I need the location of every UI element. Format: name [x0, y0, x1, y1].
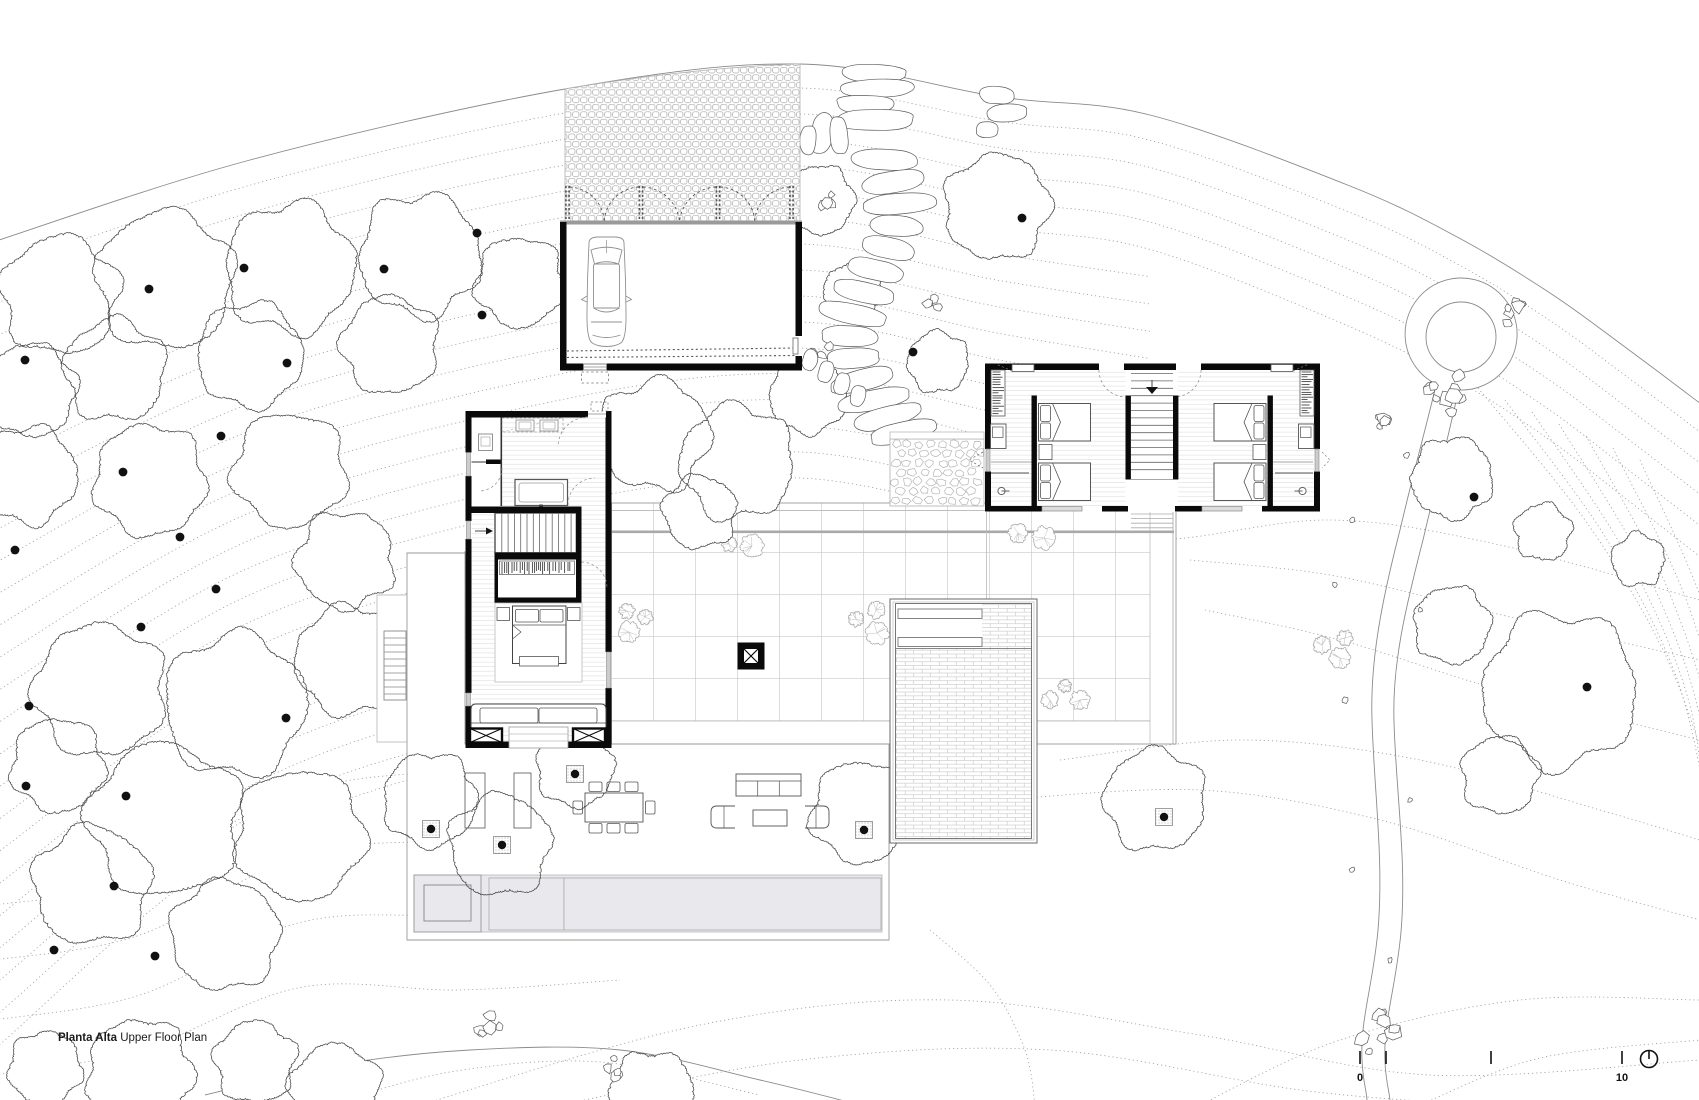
svg-text:Planta Alta Upper Floor Plan: Planta Alta Upper Floor Plan: [58, 1032, 207, 1044]
svg-text:0: 0: [1357, 1072, 1363, 1084]
svg-text:10: 10: [1616, 1072, 1628, 1084]
